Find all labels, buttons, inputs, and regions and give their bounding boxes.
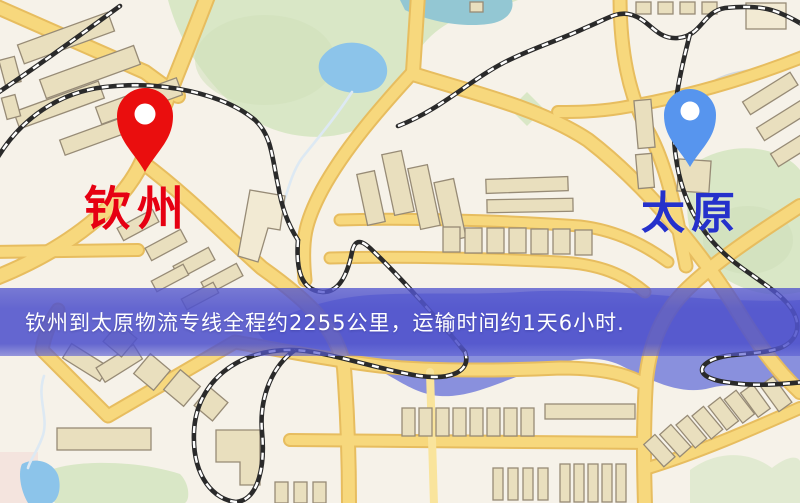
route-info-banner: 钦州到太原物流专线全程约2255公里，运输时间约1天6小时. [0, 288, 800, 356]
route-info-text: 钦州到太原物流专线全程约2255公里，运输时间约1天6小时. [25, 307, 625, 337]
map-canvas[interactable] [0, 0, 800, 503]
origin-pin-hole [135, 104, 156, 125]
destination-city-label: 太原 [641, 177, 741, 241]
map-screenshot: 钦州 太原 钦州到太原物流专线全程约2255公里，运输时间约1天6小时. [0, 0, 800, 503]
destination-pin-hole [681, 102, 700, 121]
origin-city-label: 钦州 [84, 170, 190, 239]
